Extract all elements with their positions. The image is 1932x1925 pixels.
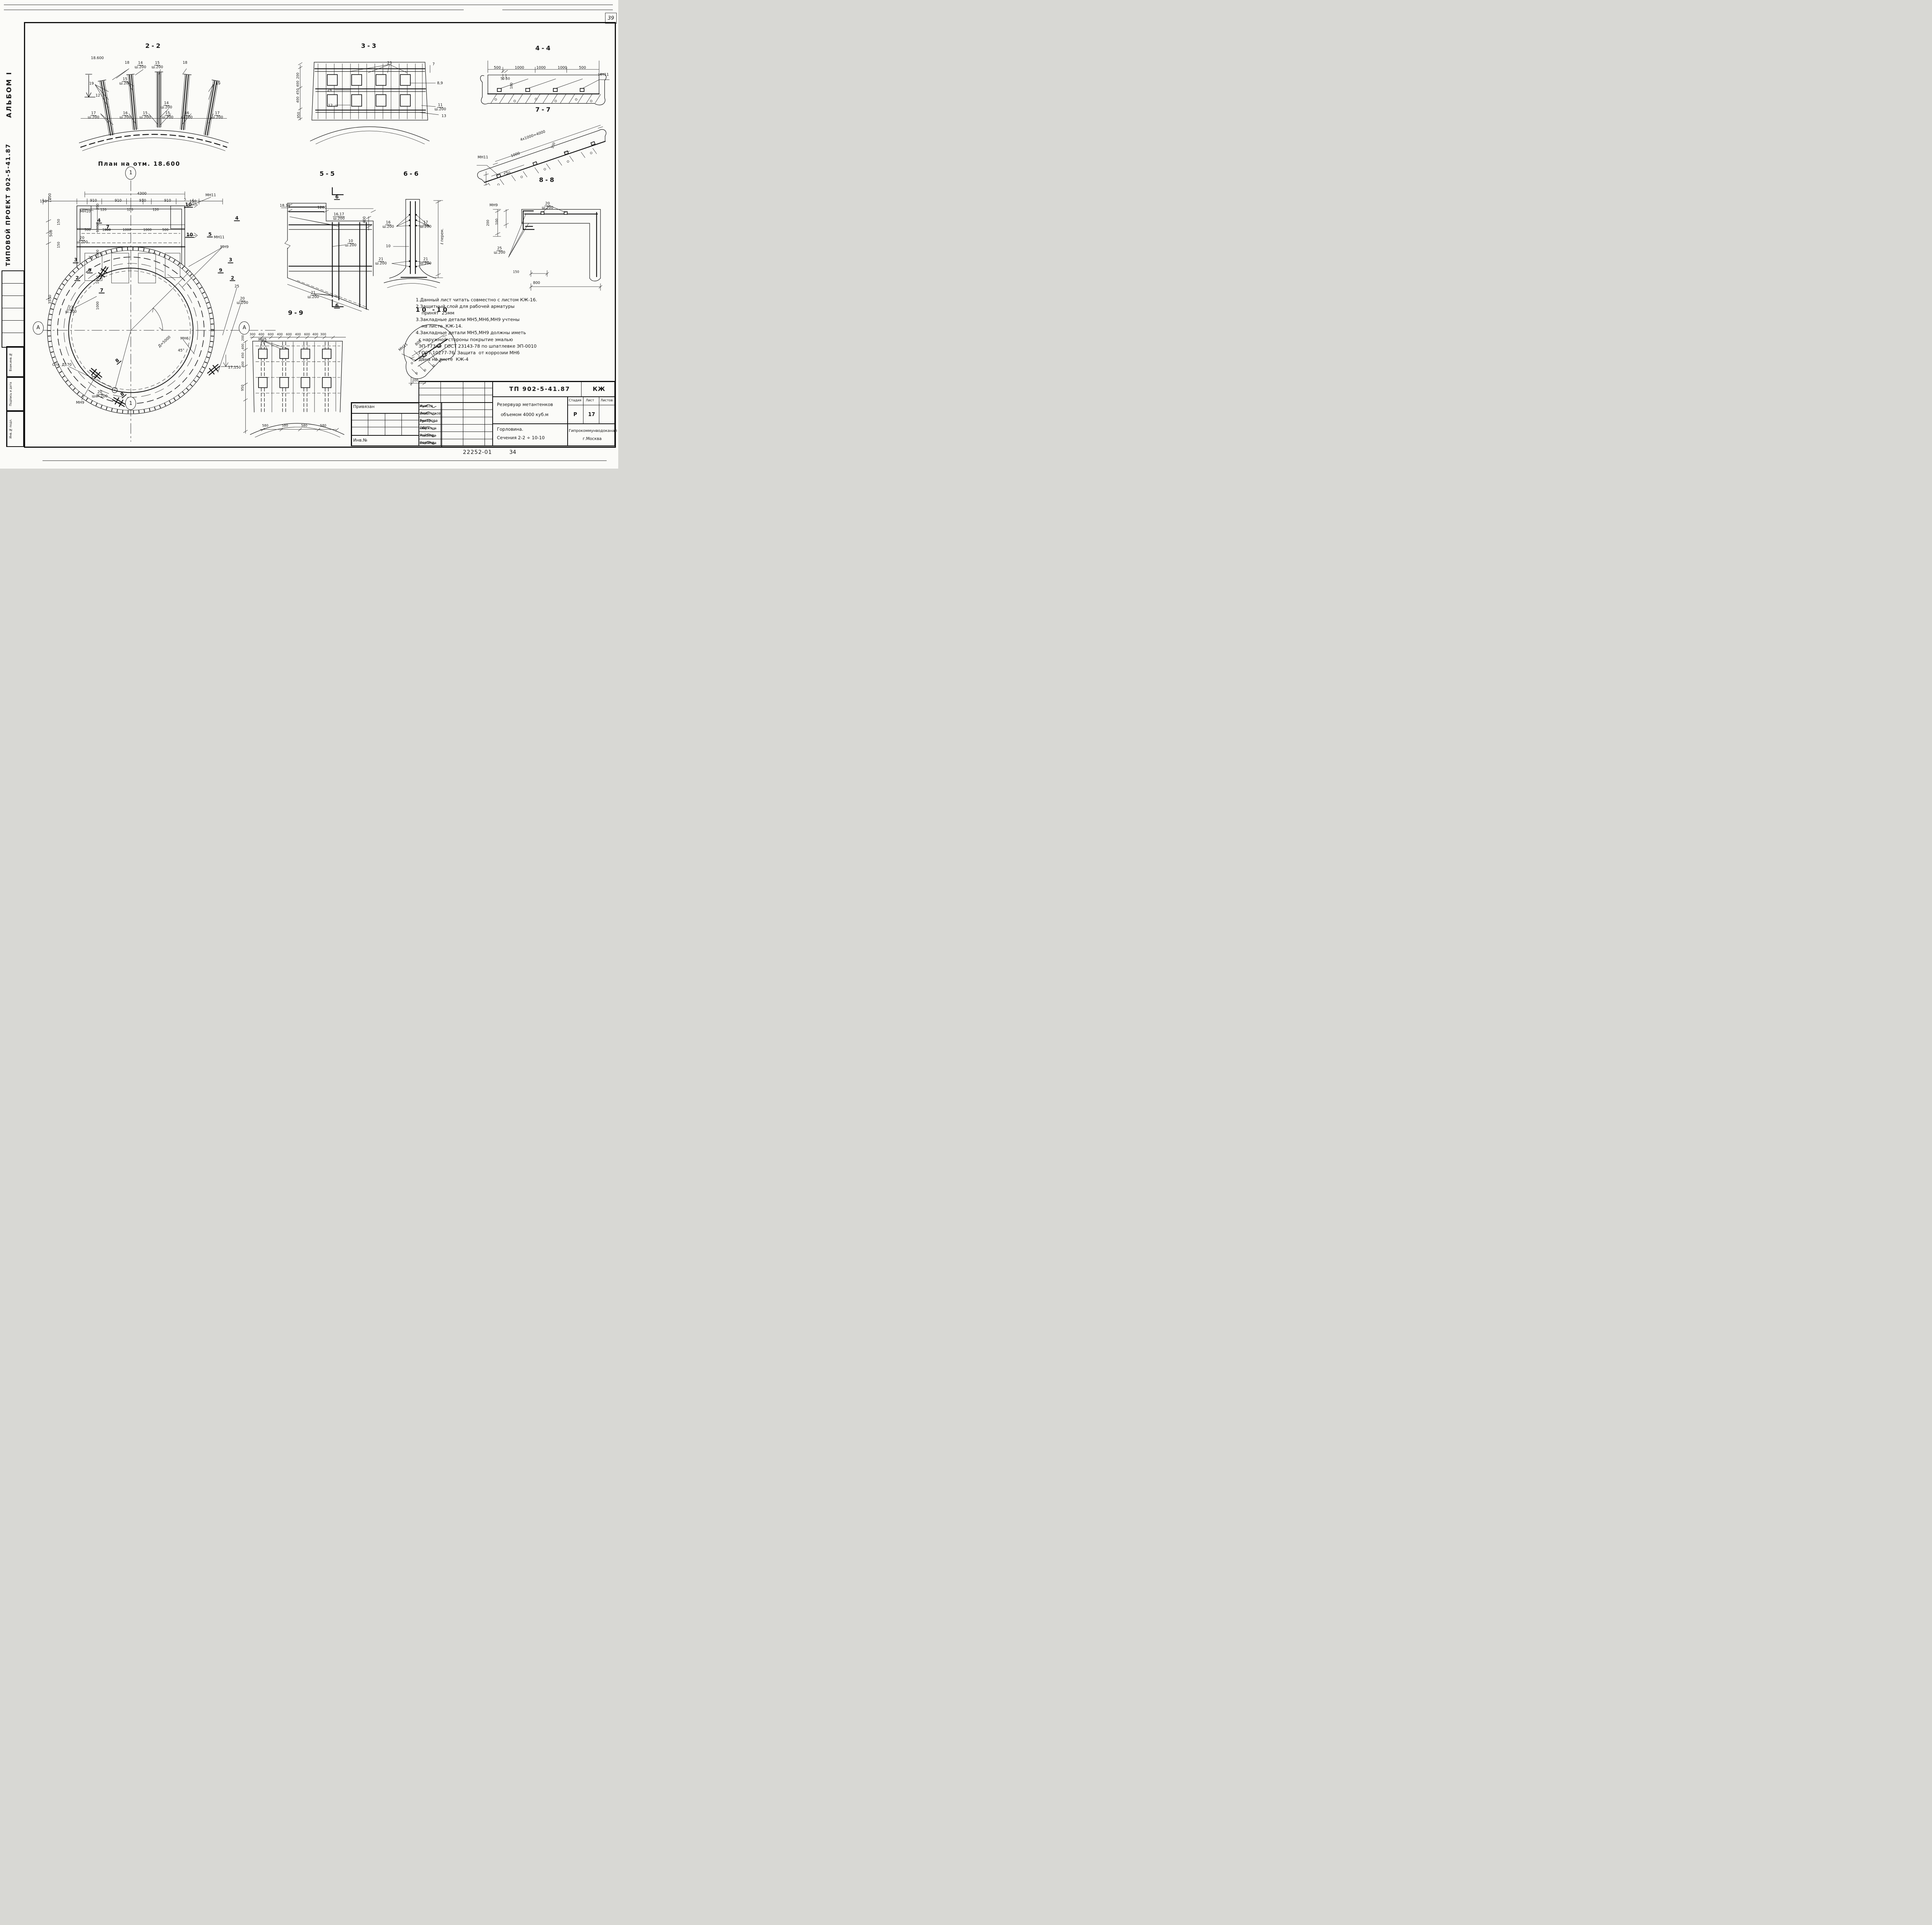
dim-label: 580 [301, 425, 307, 428]
dim-label: 1000 [536, 66, 546, 70]
dim-label: МН11 [214, 236, 224, 240]
dim-label: 600 [268, 333, 274, 336]
section-marker: 3 [228, 257, 233, 263]
titleblock-row: Рук.гр.Булатова [419, 417, 485, 425]
section-marker: 7 [99, 287, 105, 293]
dim-label: 400 [295, 333, 301, 336]
stamp-cell-vzam: Взам.инв.№ [6, 346, 24, 378]
dim-label: 150 [57, 242, 61, 248]
dim-label: 910 [164, 199, 171, 203]
dim-label: 1000 [123, 228, 131, 232]
section-marker: 3 [73, 257, 79, 263]
dim-label: Д=5000 [158, 335, 172, 348]
dim-label: 20ш.200 [76, 236, 88, 245]
dim-label: 4300 [137, 192, 146, 196]
dim-label: 23 [387, 61, 392, 65]
dim-label: 14ш.200 [161, 102, 172, 110]
section-marker: 4 [96, 217, 102, 223]
titleblock-sheet-header: Лист [586, 399, 594, 403]
note-line: с наружной стороны покрытие эмалью [416, 336, 551, 343]
section-8-8-title: 8-8 [539, 176, 556, 183]
dim-label: 50 50 [500, 78, 510, 81]
page-number-bottom: 34 [509, 449, 516, 455]
dim-label: 120 [127, 209, 133, 212]
doc-number-bottom: 22252-01 [463, 449, 492, 455]
dim-label: 150 [40, 200, 47, 204]
dim-label: 21ш.200 [375, 258, 387, 266]
section-3-3-title: 3-3 [361, 42, 378, 49]
titleblock-org-2: г.Москва [583, 437, 602, 441]
dim-label: 1000 [510, 151, 520, 158]
dim-label: 300 [250, 333, 255, 336]
dim-label: 950 [297, 112, 301, 118]
dim-label: 910 [139, 199, 146, 203]
section-8-8: 8-8 МН920ш.20020010025ш.200150800 [485, 185, 611, 300]
dim-label: 580 [262, 425, 268, 428]
bottom-rule [43, 460, 607, 461]
dim-label: 120 [100, 209, 106, 212]
dim-label: 18,19 [280, 204, 290, 208]
axis-circle-a-left: А [33, 321, 44, 335]
dim-label: МН9 [490, 204, 498, 207]
section-6-6-title: 6-6 [403, 170, 420, 177]
corner-number-text: 39 [608, 15, 614, 21]
titleblock-inv: Инв.№ [353, 438, 367, 443]
stamp-label: Взам.инв.№ [7, 347, 14, 377]
dim-label: 400 [259, 333, 264, 336]
section-6-6: 6-6 16ш.20017ш.2001021ш.20021ш.200ℓ пере… [376, 179, 447, 288]
dim-label: 1000 [96, 250, 100, 258]
dim-label: 1200 [48, 193, 52, 202]
dim-label: 25 [91, 376, 96, 380]
dim-label: ℓ перем. [440, 229, 444, 245]
dim-label: 100 [551, 142, 556, 149]
dim-label: МН6 [180, 337, 189, 341]
dim-label: 1000 [143, 228, 152, 232]
dim-label: 1000 [558, 66, 567, 70]
signature [419, 403, 440, 410]
note-line: 3.Закладные детали МН5,МН6,МН9 учтены [416, 316, 551, 323]
dim-label: 580 [320, 425, 326, 428]
dim-label: 400 [241, 362, 245, 367]
dim-label: 1000 [96, 275, 100, 284]
dim-label: 500 [579, 66, 586, 70]
dim-label: 16,17ш.200 [333, 213, 345, 221]
dim-label: 22ш.200 [65, 306, 77, 314]
dim-label: 20ш.200 [237, 297, 248, 305]
dim-label: 25 [235, 285, 239, 289]
stamp-label: Инв.№ подл. [7, 411, 14, 446]
signature [419, 432, 440, 439]
dim-label: 17ш.200 [211, 111, 223, 119]
dim-label: МН11 [598, 73, 609, 77]
section-marker: 6 [334, 194, 340, 200]
section-4-4-title: 4-4 [536, 44, 553, 52]
dim-label: 7 [432, 63, 435, 66]
dim-label: 16ш.200 [181, 111, 193, 119]
dim-label: 12 [328, 104, 333, 108]
dim-label: 1000 [96, 224, 100, 232]
dim-label: 500 [162, 228, 168, 232]
section-4-4: 4-4 50010001000100050050 50180МН11 [477, 55, 611, 110]
titleblock-object-2: объемом 4000 куб.м [501, 412, 548, 417]
section-marker: 5 [207, 231, 213, 237]
titleblock-object-1: Резервуар метантенков [497, 402, 553, 407]
section-marker: 4 [234, 215, 240, 221]
titleblock-row: Инж.Куксов [419, 403, 485, 410]
dim-label: 950 [241, 385, 245, 391]
dim-label: 400 [277, 333, 283, 336]
dim-label: 25 [88, 256, 93, 260]
dim-label: 580 [282, 425, 288, 428]
dim-label: 24 [327, 88, 332, 92]
titleblock-row: ГИП консОбух [419, 425, 485, 432]
dim-label: 250 [503, 172, 510, 175]
section-marker: 7 [105, 224, 111, 230]
dim-label: 45° [178, 349, 184, 353]
note-line: принят 25мм [416, 310, 551, 316]
dim-label: 18 [125, 61, 129, 65]
dim-label: 4x1000=4000 [520, 130, 546, 143]
dim-label: 200 [296, 73, 300, 79]
dim-label: 910 [90, 199, 97, 203]
dim-label: 500 [85, 228, 91, 232]
dim-label: 3550 [48, 295, 52, 304]
dim-label: 120 [153, 209, 159, 212]
stamp-cell-inv: Инв.№ подл. [6, 410, 24, 447]
signature [419, 439, 440, 447]
signature [419, 425, 440, 432]
dim-label: МН5 [259, 338, 267, 342]
dim-label: 400 [363, 216, 367, 223]
dim-label: 400 [241, 344, 245, 350]
dim-label: Отв. Д170 [52, 363, 71, 367]
margin-project-text: ТИПОВОЙ ПРОЕКТ 902-5-41.87 [5, 131, 15, 278]
dim-label: МН11 [398, 343, 409, 352]
titleblock-doc-code: ТП 902-5-41.87 [509, 386, 570, 392]
dim-label: 600 [304, 333, 310, 336]
dim-label: 17ш.200 [420, 221, 432, 229]
dim-label: 180 [510, 83, 514, 89]
dim-label: 450 [296, 88, 300, 95]
note-line: 1.Данный лист читать совместно с листом … [416, 297, 551, 303]
titleblock-org-1: Гипрокоммунводоканал [569, 429, 617, 433]
dim-label: 200 [241, 335, 245, 341]
top-rule-1 [4, 5, 613, 5]
section-3-3: 3-3 2378,9241211ш.20013200400450400950 [292, 51, 447, 144]
dim-label: 21ш.200 [308, 291, 319, 299]
dim-label: 15ш.200 [139, 111, 151, 119]
note-line: ГОСТ 10277-76. Защита от коррозии МН6 [416, 350, 551, 356]
note-line: на листе КЖ-14. [416, 323, 551, 330]
dim-label: 450 [241, 352, 245, 358]
dim-label: 11ш.200 [435, 104, 446, 112]
dim-label: 15ш.200 [162, 111, 173, 119]
dim-label: 500 [49, 230, 53, 237]
dim-label: 18.600 [91, 56, 104, 60]
stamp-cell-podpis: Подпись и дата [6, 376, 24, 412]
title-block: Привязан Инв.№ ТП 902-5-41.87 КЖ Резерву… [351, 381, 615, 446]
dim-label: 800 [533, 281, 540, 285]
dim-label: 1000 [515, 66, 524, 70]
dim-label: 1200 [317, 206, 327, 210]
section-marker: 9 [218, 267, 224, 273]
section-5-5-title: 5-5 [320, 170, 337, 177]
section-2-2-title: 2-2 [145, 42, 162, 49]
dim-label: МН9 [76, 401, 84, 405]
top-rule-2 [4, 10, 464, 10]
dim-label: 400 [312, 333, 318, 336]
section-marker: 10 [184, 202, 193, 207]
stamp-label: Подпись и дата [7, 377, 14, 411]
dim-label: 16ш.200 [119, 111, 131, 119]
dim-label: 250 [96, 204, 100, 210]
titleblock-privyazan: Привязан [353, 404, 374, 409]
top-rule-3 [502, 10, 613, 10]
titleblock-row: Инж.Олейников [419, 410, 485, 417]
dim-label: 21ш.200 [420, 258, 432, 266]
dim-label: 19 [89, 82, 94, 86]
section-marker: 8 [113, 357, 121, 365]
plan-title: План на отм. 18.600 [98, 160, 180, 167]
dim-label: 300 [320, 333, 326, 336]
dim-label: 5 [184, 198, 186, 201]
section-5-5: 5-5 618,19120016,17ш.20040010ш.20021ш.20… [276, 179, 380, 311]
section-2-2: 2-2 18.6001814ш.20015ш.200181915ш.200121… [77, 51, 231, 166]
dim-label: 13 [442, 114, 446, 118]
dim-label: 16ш.200 [383, 221, 394, 229]
note-line: ЭП-773хВ ГОСТ 23143-78 по шпатлевке ЭП-0… [416, 343, 551, 350]
titleblock-subtitle-1: Горловина. [497, 426, 523, 432]
titleblock-sheet-value: 17 [588, 412, 595, 418]
dim-label: МН9 [220, 245, 228, 249]
titleblock-row: Нач.отд.Сорокин [419, 439, 485, 447]
dim-label: 17ш.200 [88, 111, 99, 119]
note-line: 4.Закладные детали МН5,МН9 должны иметь [416, 330, 551, 336]
dim-label: 600 [286, 333, 292, 336]
dim-label: МН11 [206, 194, 216, 197]
dim-label: 400 [296, 81, 300, 87]
dim-label: 19 [216, 82, 220, 86]
dim-label: 20ш.200 [542, 202, 553, 210]
dim-label: 100 [495, 219, 499, 225]
titleblock-mark: КЖ [593, 386, 605, 392]
dim-label: 15ш.200 [119, 78, 131, 86]
dim-label: 8,9 [437, 82, 443, 85]
dim-label: 10ш.200 [345, 240, 357, 248]
section-marker: 9 [87, 267, 93, 273]
dim-label: 18 [183, 61, 187, 65]
margin-album-text: АЛЬБОМ I [5, 58, 15, 131]
titleblock-stage-value: Р [573, 412, 577, 418]
section-marker: 2 [230, 275, 235, 281]
section-marker: 6 [334, 302, 340, 308]
signature [419, 417, 440, 425]
axis-circle-1-top: 1 [125, 167, 136, 180]
titleblock-subtitle-2: Сечения 2-2 ÷ 10-10 [497, 435, 545, 440]
dim-label: 25ш.200 [494, 246, 505, 255]
dim-label: 200 [487, 220, 490, 226]
dim-label: МН11 [478, 156, 488, 160]
dim-label: 1000 [96, 301, 100, 310]
dim-label: 910 [115, 199, 122, 203]
margin-table [2, 270, 24, 348]
dim-label: 12 [95, 94, 100, 98]
dim-label: 500 [494, 66, 501, 70]
dim-label: 10 [386, 245, 391, 248]
note-line: дана на листе КЖ-4 [416, 356, 551, 363]
dim-label: 150 [57, 219, 61, 225]
section-marker: 10 [185, 232, 194, 238]
notes-block: 1.Данный лист читать совместно с листом … [416, 297, 551, 363]
titleblock-stage-header: Стадия [569, 399, 582, 403]
note-line: 2.Защитный слой для рабочей арматуры [416, 303, 551, 310]
dim-label: 14ш.200 [134, 61, 146, 70]
dim-label: 400 [296, 96, 300, 102]
dim-label: 150 [513, 270, 519, 274]
dim-label: 15ш.200 [151, 61, 163, 70]
section-7-7-title: 7-7 [536, 106, 553, 113]
section-9-9: 9-9 300400600400600400600400300МН5200400… [238, 318, 355, 437]
section-9-9-title: 9-9 [288, 309, 305, 316]
signature [419, 410, 440, 417]
titleblock-sheets-header: Листов [600, 399, 613, 403]
section-marker: 2 [74, 275, 80, 281]
section-7-7: 7-7 4x1000=40001000100МН11250 [473, 114, 615, 185]
blueprint-page: 39 АЛЬБОМ I ТИПОВОЙ ПРОЕКТ 902-5-41.87 В… [0, 0, 618, 469]
dim-label: МН10 [80, 210, 90, 214]
titleblock-row: Н.контрРойзман [419, 432, 485, 439]
dim-label: 20шаг 200 [92, 391, 108, 399]
axis-circle-1-bottom: 1 [125, 397, 136, 410]
section-marker: 8 [119, 390, 127, 398]
